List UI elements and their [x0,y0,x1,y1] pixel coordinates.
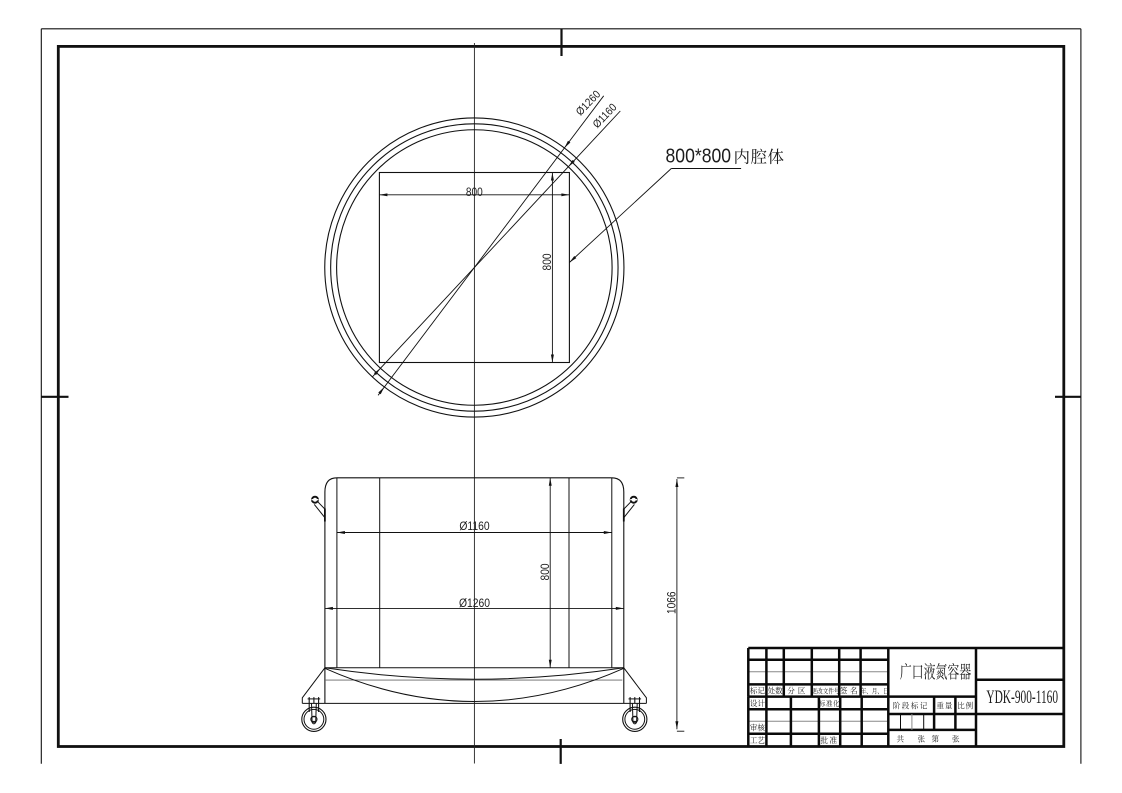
svg-text:800: 800 [539,564,552,581]
svg-text:800: 800 [542,254,555,271]
svg-text:800*800: 800*800 [666,144,732,166]
svg-text:1066: 1066 [666,591,679,614]
svg-text:Ø1260: Ø1260 [459,598,490,611]
svg-text:YDK-900-1160: YDK-900-1160 [986,687,1058,708]
svg-text:800: 800 [466,187,483,200]
svg-text:Ø1160: Ø1160 [459,521,489,534]
